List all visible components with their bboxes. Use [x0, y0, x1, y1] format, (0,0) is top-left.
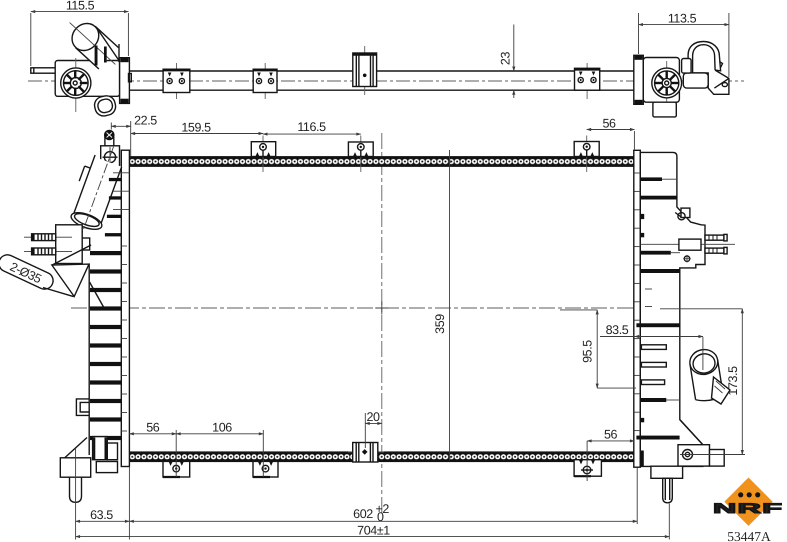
svg-text:83.5: 83.5 [606, 323, 629, 337]
svg-text:173.5: 173.5 [726, 366, 740, 396]
svg-text:56: 56 [604, 427, 618, 441]
svg-text:602: 602 [353, 507, 373, 521]
svg-text:113.5: 113.5 [668, 11, 697, 25]
svg-text:359: 359 [433, 314, 447, 334]
svg-text:704±1: 704±1 [357, 523, 390, 537]
svg-text:56: 56 [602, 116, 616, 130]
svg-text:22.5: 22.5 [134, 113, 157, 127]
svg-text:56: 56 [146, 420, 160, 434]
svg-text:106: 106 [212, 420, 232, 434]
svg-text:116.5: 116.5 [297, 120, 326, 134]
svg-text:63.5: 63.5 [90, 508, 113, 522]
svg-text:23: 23 [499, 52, 513, 66]
svg-text:20: 20 [366, 410, 380, 424]
svg-text:159.5: 159.5 [181, 120, 211, 134]
svg-text:NRF: NRF [713, 500, 783, 516]
svg-text:95.5: 95.5 [581, 340, 595, 363]
svg-text:115.5: 115.5 [66, 0, 95, 13]
svg-text:0: 0 [377, 510, 384, 524]
svg-text:53447A: 53447A [727, 529, 771, 542]
